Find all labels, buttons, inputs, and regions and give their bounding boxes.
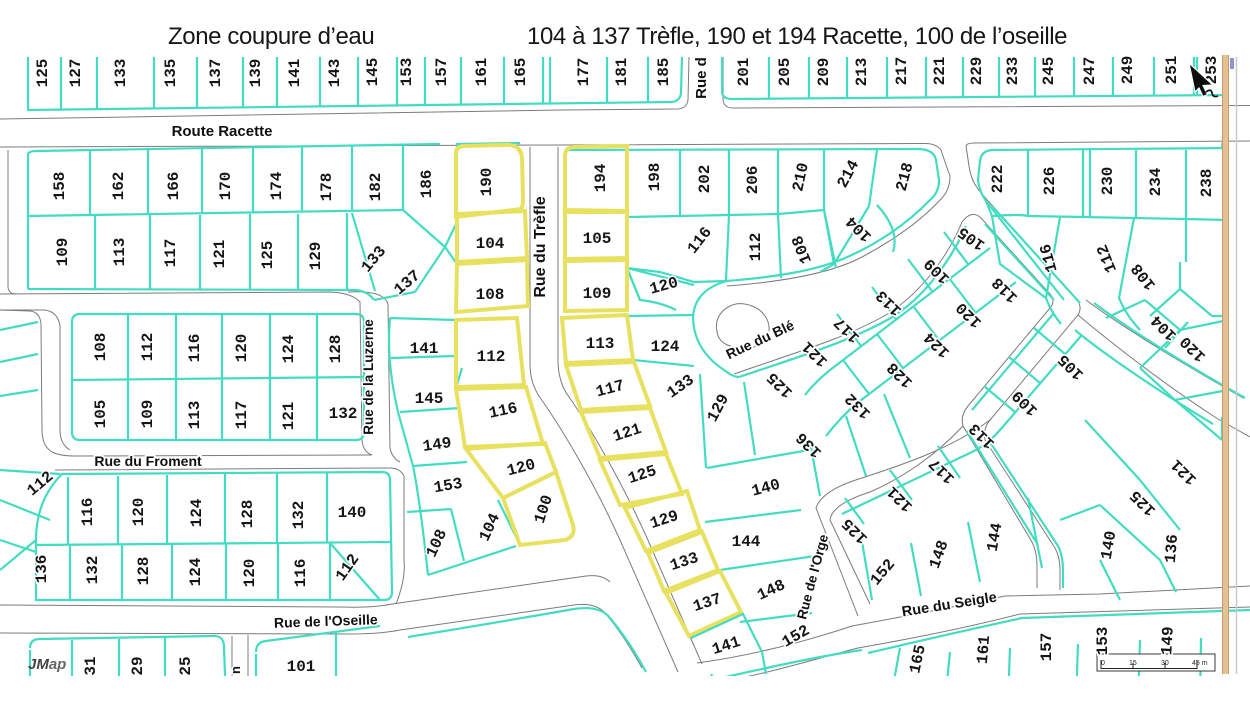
svg-text:182: 182 <box>367 173 385 202</box>
svg-text:JMap: JMap <box>28 656 66 673</box>
svg-text:140: 140 <box>338 504 367 522</box>
svg-text:120: 120 <box>233 334 251 363</box>
svg-text:124: 124 <box>280 334 298 363</box>
svg-text:128: 128 <box>327 335 345 364</box>
svg-text:29: 29 <box>129 656 147 675</box>
svg-text:149: 149 <box>1158 626 1177 656</box>
svg-text:109: 109 <box>54 238 72 267</box>
svg-text:120: 120 <box>130 498 148 527</box>
svg-text:161: 161 <box>974 635 994 665</box>
svg-text:25: 25 <box>177 656 195 675</box>
svg-text:157: 157 <box>1038 633 1056 662</box>
svg-text:Rue du Trèfle: Rue du Trèfle <box>532 196 549 297</box>
svg-text:45 m: 45 m <box>1192 660 1208 667</box>
svg-text:116: 116 <box>292 559 310 588</box>
svg-text:125: 125 <box>259 241 277 270</box>
svg-text:181: 181 <box>613 58 631 87</box>
svg-text:136: 136 <box>1162 534 1182 564</box>
svg-text:133: 133 <box>112 59 130 88</box>
svg-text:201: 201 <box>735 58 753 87</box>
svg-text:127: 127 <box>67 59 85 88</box>
svg-text:109: 109 <box>583 285 612 303</box>
svg-text:143: 143 <box>326 59 344 88</box>
svg-text:113: 113 <box>186 401 204 430</box>
svg-text:108: 108 <box>92 333 110 362</box>
svg-text:233: 233 <box>1004 57 1022 86</box>
svg-text:112: 112 <box>747 233 765 262</box>
svg-text:Rue d: Rue d <box>693 57 710 99</box>
svg-text:132: 132 <box>84 556 102 585</box>
svg-text:213: 213 <box>853 58 871 87</box>
svg-text:112: 112 <box>139 333 157 362</box>
svg-text:Rue du Froment: Rue du Froment <box>94 453 202 469</box>
svg-text:185: 185 <box>655 58 673 87</box>
svg-text:104 à 137 Trèfle, 190 et 194 R: 104 à 137 Trèfle, 190 et 194 Racette, 10… <box>527 23 1067 50</box>
svg-text:198: 198 <box>646 163 664 192</box>
svg-text:136: 136 <box>33 555 51 584</box>
svg-text:194: 194 <box>592 163 610 192</box>
svg-text:Rue de la Luzerne: Rue de la Luzerne <box>361 319 376 435</box>
svg-text:174: 174 <box>268 171 286 200</box>
svg-text:229: 229 <box>968 57 986 86</box>
svg-text:217: 217 <box>893 57 911 86</box>
svg-text:104: 104 <box>476 235 505 253</box>
svg-text:128: 128 <box>135 557 153 586</box>
svg-text:206: 206 <box>744 166 762 195</box>
svg-text:186: 186 <box>418 170 436 199</box>
svg-text:121: 121 <box>211 240 229 269</box>
svg-text:105: 105 <box>583 230 612 248</box>
svg-text:132: 132 <box>329 405 358 423</box>
svg-text:139: 139 <box>247 59 265 88</box>
svg-text:238: 238 <box>1198 169 1216 198</box>
svg-text:116: 116 <box>186 334 204 363</box>
svg-text:162: 162 <box>110 172 128 201</box>
svg-text:245: 245 <box>1040 57 1058 86</box>
svg-text:170: 170 <box>217 172 235 201</box>
svg-text:141: 141 <box>286 59 304 88</box>
svg-text:157: 157 <box>433 58 451 87</box>
svg-text:120: 120 <box>241 559 259 588</box>
svg-text:153: 153 <box>1094 627 1112 656</box>
svg-text:117: 117 <box>233 401 251 430</box>
svg-text:178: 178 <box>318 173 336 202</box>
svg-text:205: 205 <box>776 58 794 87</box>
svg-text:124: 124 <box>187 557 205 586</box>
svg-text:144: 144 <box>732 533 761 551</box>
svg-text:105: 105 <box>92 400 110 429</box>
svg-text:190: 190 <box>478 168 496 197</box>
svg-text:161: 161 <box>473 58 491 87</box>
svg-text:112: 112 <box>477 348 506 366</box>
svg-text:101: 101 <box>287 658 316 676</box>
svg-text:113: 113 <box>111 238 129 267</box>
svg-text:125: 125 <box>34 59 52 88</box>
svg-text:141: 141 <box>410 340 439 358</box>
svg-text:145: 145 <box>415 390 444 408</box>
svg-text:15: 15 <box>1129 660 1137 667</box>
svg-text:137: 137 <box>207 59 225 88</box>
svg-text:Zone coupure d’eau: Zone coupure d’eau <box>168 23 374 50</box>
svg-text:0: 0 <box>1101 660 1105 667</box>
svg-text:166: 166 <box>165 172 183 201</box>
svg-text:226: 226 <box>1041 167 1059 196</box>
svg-text:121: 121 <box>280 402 298 431</box>
svg-text:30: 30 <box>1161 660 1169 667</box>
svg-text:234: 234 <box>1147 167 1165 196</box>
svg-text:132: 132 <box>290 501 308 530</box>
svg-text:249: 249 <box>1119 56 1137 85</box>
svg-text:202: 202 <box>696 165 714 194</box>
svg-text:n: n <box>228 666 243 674</box>
svg-text:117: 117 <box>162 239 180 268</box>
svg-text:158: 158 <box>51 172 69 201</box>
svg-text:251: 251 <box>1163 56 1181 85</box>
svg-text:108: 108 <box>476 286 505 304</box>
svg-text:113: 113 <box>586 335 615 353</box>
svg-text:124: 124 <box>651 338 680 356</box>
svg-text:124: 124 <box>188 498 206 527</box>
svg-text:177: 177 <box>575 58 593 87</box>
svg-text:221: 221 <box>931 57 949 86</box>
svg-text:165: 165 <box>512 58 530 87</box>
svg-text:145: 145 <box>364 58 382 87</box>
svg-text:230: 230 <box>1099 167 1117 196</box>
svg-text:129: 129 <box>307 242 325 271</box>
svg-text:109: 109 <box>139 400 157 429</box>
svg-text:153: 153 <box>398 58 416 87</box>
svg-text:116: 116 <box>79 498 97 527</box>
svg-text:128: 128 <box>239 500 257 529</box>
svg-text:Route Racette: Route Racette <box>172 123 273 140</box>
svg-text:135: 135 <box>162 59 180 88</box>
svg-text:222: 222 <box>989 165 1007 194</box>
svg-text:31: 31 <box>82 656 100 675</box>
svg-text:247: 247 <box>1081 57 1099 86</box>
svg-text:209: 209 <box>815 58 833 87</box>
